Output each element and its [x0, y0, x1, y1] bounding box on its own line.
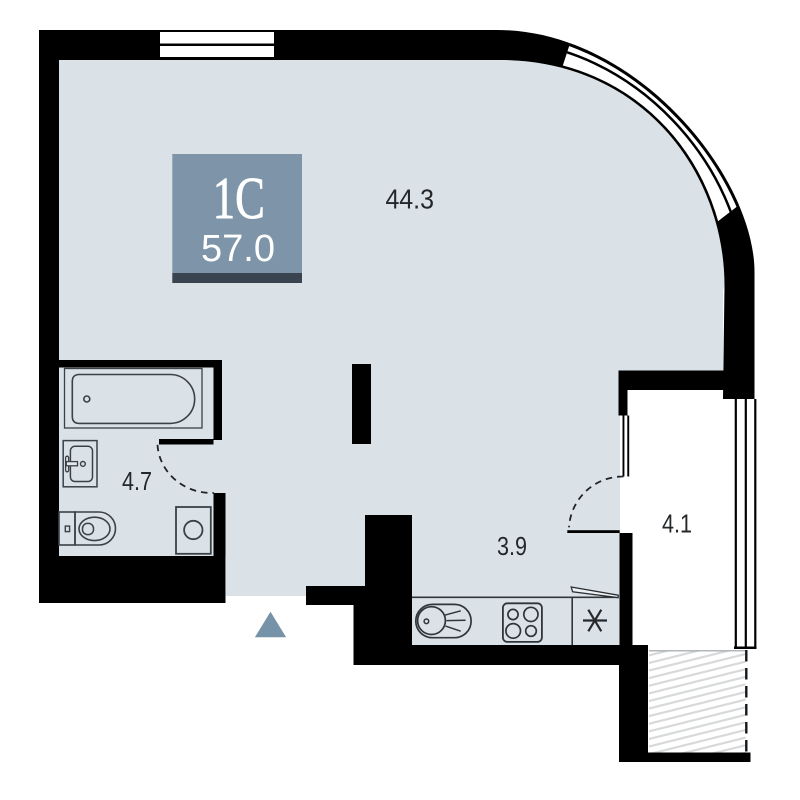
svg-text:4.7: 4.7	[122, 466, 152, 496]
svg-text:57.0: 57.0	[201, 228, 275, 270]
svg-text:1C: 1C	[213, 165, 265, 231]
svg-text:4.1: 4.1	[662, 509, 692, 539]
svg-text:3.9: 3.9	[497, 531, 527, 561]
svg-text:44.3: 44.3	[385, 184, 434, 215]
